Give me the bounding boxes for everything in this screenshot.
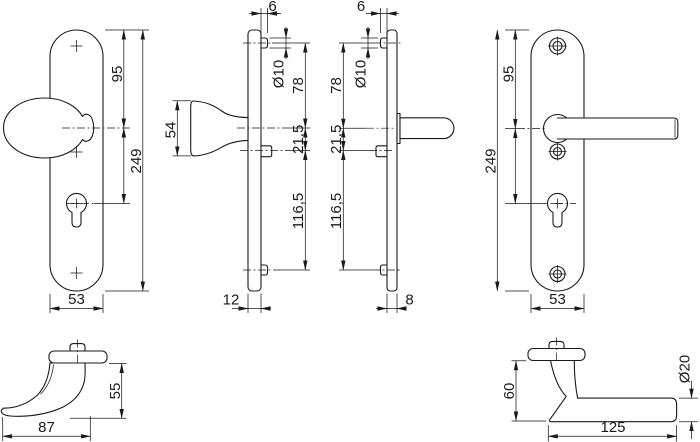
dim-screw-hole-right: Ø10 (353, 60, 370, 88)
dim-lever-to-clip: 21,5 (328, 125, 345, 154)
dim-knob-plate-height: 249 (128, 148, 145, 173)
dim-knob-top-to-center: 95 (109, 66, 126, 83)
dim-knob-to-clip: 21,5 (290, 125, 307, 154)
lever-plate-side-outline (387, 30, 397, 291)
dim-screw-to-knob: 78 (290, 77, 307, 94)
view-front-lever-plate: 95 249 53 (483, 30, 678, 313)
dim-knob-plate-width: 53 (68, 291, 85, 308)
screw-position-cross-bottom (71, 267, 83, 279)
lever-grip-side (400, 118, 454, 139)
dim-screw-hole-left: Ø10 (271, 60, 288, 88)
dim-clip-to-screw-right: 116,5 (328, 193, 345, 229)
screw-bottom (549, 265, 567, 283)
dim-lever-plate-height: 249 (483, 148, 500, 173)
lever-profile-shape (549, 361, 676, 422)
dim-boss-depth-right: 6 (357, 0, 365, 15)
view-profile-lever: 60 125 Ø20 (501, 338, 698, 442)
dim-screw-to-lever: 78 (328, 77, 345, 94)
view-side-lever-plate: 6 Ø10 78 21,5 116,5 8 (328, 0, 454, 313)
knob-side-shape (191, 101, 248, 156)
knob-plate-outline (50, 30, 103, 291)
drawing-canvas: 95 249 53 6 Ø10 78 21,5 116,5 (0, 0, 700, 442)
dim-clip-to-screw-left: 116,5 (290, 193, 307, 229)
euro-cylinder-hole (67, 193, 87, 227)
dim-lever-height: 60 (501, 383, 518, 400)
view-profile-knob: 55 87 (1, 340, 126, 442)
fixing-clip (376, 146, 387, 157)
view-front-knob-plate: 95 249 53 (4, 30, 150, 313)
dim-plate-thickness-right: 8 (405, 292, 413, 309)
dim-knob-height: 55 (107, 383, 124, 400)
dim-lever-length: 125 (600, 419, 625, 436)
dim-grip-diameter: Ø20 (677, 355, 694, 383)
view-side-knob-plate: 6 Ø10 78 21,5 116,5 12 54 (163, 0, 311, 313)
dim-lever-top-to-center: 95 (501, 66, 518, 83)
plate-section (49, 351, 107, 363)
fixing-clip (261, 146, 272, 157)
screw-position-cross-top (71, 40, 83, 52)
euro-cylinder-hole (548, 193, 568, 227)
technical-drawing: 95 249 53 6 Ø10 78 21,5 116,5 (0, 0, 700, 442)
screw-middle (549, 143, 567, 161)
dim-boss-depth-left: 6 (268, 0, 276, 15)
screw-top (548, 37, 567, 56)
dim-lever-plate-width: 53 (549, 291, 566, 308)
knob-profile-shape (1, 363, 85, 416)
dim-knob-cap: 54 (163, 122, 180, 139)
dim-plate-thickness-left: 12 (223, 292, 240, 309)
dim-knob-projection: 87 (38, 419, 55, 436)
knob-plate-side-outline (248, 30, 261, 291)
